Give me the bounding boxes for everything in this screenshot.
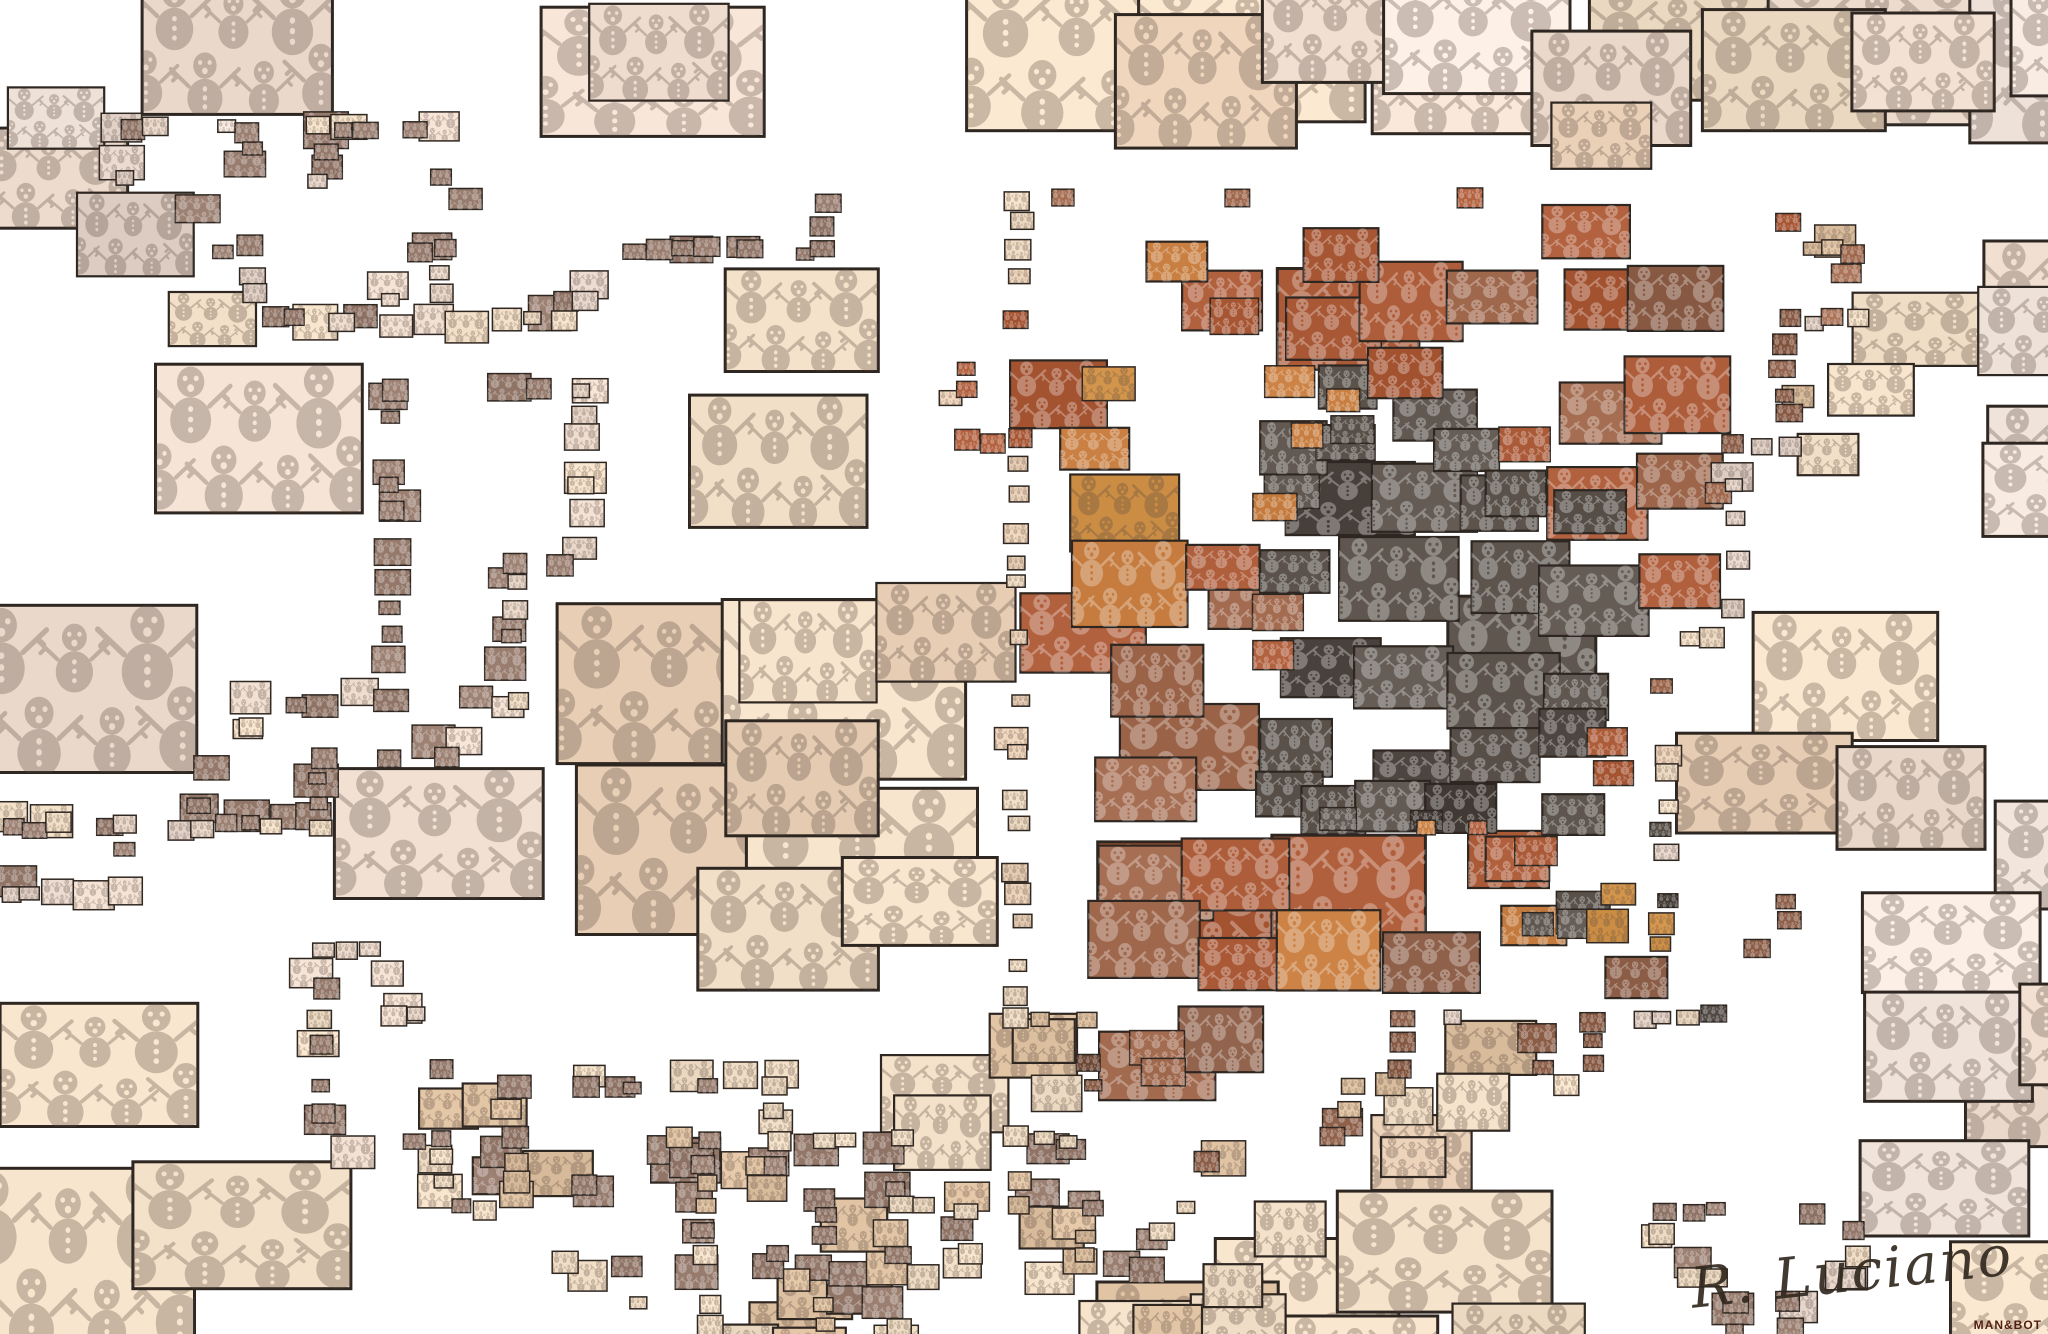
- mosaic-tile: [1776, 437, 1804, 456]
- mosaic-tile: [429, 1131, 453, 1147]
- mosaic-tile: [1796, 1204, 1828, 1224]
- mosaic-tile: [1317, 1127, 1348, 1146]
- mosaic-tile: [1959, 443, 2048, 539]
- mosaic-tile: [1576, 1013, 1608, 1033]
- mosaic-tile: [427, 284, 456, 303]
- mosaic-tile: [1698, 1269, 1730, 1287]
- mosaic-tile: [565, 499, 609, 527]
- mosaic-tile: [1123, 1305, 1211, 1334]
- mosaic-tile: [1837, 1268, 1868, 1289]
- mosaic-tile: [236, 718, 266, 737]
- mosaic-tile: [1074, 1012, 1099, 1028]
- mosaic-tile: [307, 1035, 336, 1054]
- mosaic-tile: [1491, 427, 1557, 463]
- mosaic-tile: [1175, 1201, 1197, 1213]
- mosaic-tile: [568, 1175, 599, 1195]
- mosaic-tile: [1369, 932, 1493, 994]
- mosaic-tile: [765, 1132, 794, 1152]
- mosaic-tile: [1772, 404, 1805, 422]
- mosaic-tile: [1655, 894, 1680, 908]
- mosaic-tile: [1005, 269, 1032, 284]
- mosaic-tile: [42, 812, 74, 833]
- mosaic-tile: [139, 117, 172, 136]
- mosaic-tile: [1550, 1075, 1582, 1096]
- mosaic-tile: [1596, 957, 1675, 999]
- mosaic-tile: [1001, 883, 1034, 905]
- mosaic-tile: [349, 122, 381, 139]
- mosaic-tile: [693, 1199, 718, 1214]
- mosaic-tile: [1006, 486, 1031, 502]
- mosaic-tile: [309, 1104, 338, 1123]
- mosaic-tile: [370, 570, 415, 596]
- mosaic-tile: [1080, 1200, 1106, 1216]
- mosaic-tile: [1245, 594, 1310, 631]
- mosaic-tile: [114, 0, 357, 118]
- mosaic-tile: [283, 698, 309, 714]
- mosaic-tile: [1596, 883, 1640, 905]
- mosaic-tile: [1454, 188, 1486, 208]
- mosaic-tile: [428, 169, 454, 185]
- mosaic-tile: [1581, 1055, 1606, 1071]
- mosaic-tile: [856, 1287, 908, 1319]
- mosaic-tile: [569, 291, 602, 310]
- mosaic-tile: [1244, 1201, 1334, 1257]
- mosaic-tile: [239, 816, 261, 830]
- mosaic-tile: [310, 943, 338, 957]
- mosaic-tile: [500, 553, 530, 573]
- mosaic-tile: [690, 1246, 721, 1265]
- mosaic-tile: [1001, 240, 1034, 261]
- mosaic-tile: [455, 686, 497, 708]
- mosaic-tile: [1000, 987, 1030, 1006]
- mosaic-tile: [379, 294, 401, 307]
- mosaic-tile: [1007, 212, 1037, 229]
- mosaic-tile: [937, 1217, 977, 1241]
- mosaic-tile: [1581, 909, 1634, 943]
- mosaic-tile: [1195, 1264, 1270, 1308]
- mosaic-tile: [620, 244, 649, 259]
- mosaic-tile: [523, 379, 554, 400]
- mosaic-tile: [1028, 1012, 1051, 1026]
- mosaic-tile: [1000, 524, 1032, 544]
- mosaic-tile: [1073, 1054, 1103, 1071]
- mosaic-tile: [1533, 794, 1612, 836]
- mosaic-tile: [1385, 1060, 1414, 1078]
- mosaic-tile: [643, 239, 676, 260]
- mosaic-tile: [257, 819, 284, 834]
- mosaic-tile: [304, 1010, 335, 1029]
- mosaic-tile: [1005, 745, 1029, 760]
- mosaic-tile: [742, 1176, 792, 1202]
- mosaic-tile: [1530, 205, 1642, 260]
- mosaic-tile: [1772, 1292, 1802, 1312]
- mosaic-tile: [1696, 628, 1727, 649]
- mosaic-tile: [1433, 1304, 1602, 1334]
- mosaic-tile: [910, 1198, 937, 1214]
- mosaic-tile: [427, 266, 452, 280]
- mosaic-tile: [303, 116, 333, 134]
- mosaic-tile: [282, 309, 307, 326]
- mosaic-tile: [377, 477, 401, 492]
- mosaic-tile: [1024, 1075, 1088, 1112]
- mosaic-tile: [999, 1008, 1031, 1029]
- artwork-canvas: R. Luciano MAN&BOT: [0, 0, 2048, 1334]
- mosaic-tile: [1049, 189, 1077, 206]
- mosaic-tile: [189, 756, 234, 781]
- mosaic-tile: [500, 1171, 533, 1193]
- mosaic-tile: [1257, 366, 1321, 398]
- mosaic-tile: [1647, 937, 1673, 951]
- mosaic-tile: [306, 773, 328, 784]
- mosaic-tile: [889, 1130, 917, 1146]
- mosaic-tile: [1222, 189, 1253, 207]
- mosaic-tile: [1838, 245, 1868, 264]
- mosaic-tile: [1581, 1034, 1604, 1048]
- mosaic-tile: [1723, 551, 1752, 569]
- mosaic-tile: [310, 978, 343, 999]
- mosaic-tile: [400, 122, 430, 138]
- mosaic-tile: [1815, 747, 2004, 853]
- mosaic-tile: [487, 1099, 525, 1119]
- mosaic-tile: [764, 1246, 791, 1262]
- mosaic-tile: [1816, 364, 1926, 417]
- mosaic-tile: [1840, 1222, 1867, 1240]
- mosaic-tile: [308, 797, 330, 810]
- mosaic-tile: [1050, 428, 1138, 471]
- mosaic-tile: [187, 821, 216, 838]
- mosaic-tile: [1530, 1061, 1556, 1075]
- mosaic-tile: [807, 241, 838, 257]
- mosaic-tile: [377, 1006, 410, 1026]
- mosaic-tile: [367, 646, 409, 673]
- mosaic-tile: [444, 188, 486, 209]
- mosaic-tile: [881, 1247, 914, 1264]
- mosaic-tile: [1609, 356, 1744, 435]
- mosaic-tile: [955, 362, 977, 375]
- mosaic-tile: [663, 1127, 696, 1148]
- mosaic-tile: [1005, 456, 1030, 471]
- mosaic-tile: [1004, 575, 1028, 588]
- mosaic-tile: [1000, 311, 1031, 329]
- mosaic-tile: [1315, 808, 1362, 831]
- mosaic-tile: [1006, 1197, 1032, 1215]
- mosaic-tile: [1250, 550, 1339, 594]
- mosaic-tile: [499, 601, 531, 620]
- snowman-mosaic: [0, 0, 2048, 1334]
- mosaic-tile: [1306, 1191, 1580, 1315]
- mosaic-tile: [688, 1156, 718, 1175]
- mosaic-tile: [1509, 837, 1563, 867]
- mosaic-tile: [306, 820, 335, 836]
- mosaic-tile: [1073, 1248, 1097, 1262]
- mosaic-tile: [521, 312, 543, 325]
- mosaic-tile: [427, 1060, 456, 1079]
- mosaic-tile: [1840, 992, 2048, 1104]
- mosaic-tile: [814, 1318, 838, 1331]
- mosaic-tile: [1425, 429, 1508, 472]
- mosaic-tile: [104, 877, 147, 905]
- mosaic-tile: [400, 1134, 428, 1149]
- mosaic-tile: [380, 626, 405, 642]
- mosaic-tile: [479, 647, 531, 681]
- mosaic-tile: [1477, 471, 1554, 518]
- mosaic-tile: [305, 174, 329, 188]
- mosaic-tile: [832, 1133, 858, 1147]
- mosaic-tile: [1650, 1012, 1673, 1024]
- mosaic-tile: [236, 268, 269, 285]
- mosaic-tile: [1293, 228, 1389, 283]
- mosaic-tile: [1005, 556, 1027, 570]
- mosaic-tile: [240, 284, 270, 303]
- mosaic-tile: [664, 395, 891, 531]
- mosaic-tile: [733, 240, 766, 258]
- mosaic-tile: [379, 411, 402, 423]
- mosaic-tile: [1008, 630, 1029, 645]
- mosaic-tile: [1765, 360, 1798, 377]
- mosaic-tile: [807, 217, 837, 236]
- mosaic-tile: [1322, 537, 1475, 623]
- mosaic-tile: [669, 241, 697, 256]
- mosaic-tile: [1648, 679, 1675, 693]
- mosaic-tile: [998, 863, 1031, 882]
- mosaic-tile: [1005, 816, 1032, 831]
- mosaic-tile: [1650, 1203, 1679, 1220]
- mosaic-tile: [1262, 910, 1394, 993]
- mosaic-tile: [404, 243, 435, 262]
- mosaic-tile: [1247, 641, 1299, 671]
- mosaic-tile: [1581, 728, 1632, 757]
- mosaic-tile: [1652, 764, 1680, 781]
- mosaic-tile: [333, 942, 360, 960]
- mosaic-tile: [498, 1127, 531, 1149]
- mosaic-tile: [813, 1208, 839, 1223]
- mosaic-tile: [1001, 192, 1033, 211]
- mosaic-tile: [564, 477, 597, 494]
- mosaic-tile: [1335, 1102, 1364, 1118]
- mosaic-tile: [1427, 1074, 1519, 1133]
- mosaic-tile: [1673, 1010, 1702, 1025]
- mosaic-tile: [1719, 599, 1747, 618]
- mosaic-tile: [627, 1297, 649, 1309]
- mosaic-tile: [1073, 1230, 1098, 1243]
- mosaic-tile: [1011, 914, 1035, 928]
- mosaic-tile: [883, 1182, 907, 1196]
- mosaic-tile: [1057, 1136, 1079, 1149]
- mosaic-tile: [548, 1251, 581, 1274]
- mosaic-tile: [111, 843, 138, 857]
- mosaic-tile: [1075, 367, 1142, 402]
- mosaic-tile: [1842, 1246, 1873, 1267]
- mosaic-tile: [356, 942, 383, 956]
- mosaic-tile: [1518, 913, 1557, 937]
- mosaic-tile: [884, 1319, 915, 1334]
- mosaic-tile: [1773, 895, 1797, 909]
- mosaic-tile: [1657, 800, 1681, 814]
- mosaic-tile: [210, 245, 236, 259]
- mosaic-tile: [762, 1328, 855, 1334]
- mosaic-tile: [1749, 439, 1775, 455]
- mosaic-tile: [1338, 1078, 1368, 1094]
- mosaic-tile: [1191, 1151, 1223, 1172]
- mosaic-tile: [809, 1227, 840, 1245]
- mosaic-tile: [405, 1007, 427, 1021]
- mosaic-tile: [304, 769, 571, 903]
- mosaic-tile: [374, 750, 403, 768]
- mosaic-tile: [812, 194, 845, 212]
- mosaic-tile: [695, 1079, 720, 1093]
- mosaic-tile: [1680, 1205, 1707, 1222]
- mosaic-tile: [1827, 264, 1865, 283]
- mosaic-tile: [761, 1103, 786, 1119]
- mosaic-tile: [1704, 1203, 1728, 1216]
- mosaic-tile: [376, 601, 403, 615]
- mosaic-tile: [499, 629, 524, 642]
- mosaic-tile: [548, 311, 580, 331]
- mosaic-tile: [1537, 103, 1665, 171]
- mosaic-tile: [1007, 960, 1029, 972]
- mosaic-tile: [1287, 423, 1327, 449]
- mosaic-tile: [1628, 554, 1731, 609]
- mosaic-tile: [1922, 1242, 2048, 1334]
- mosaic-tile: [758, 1077, 790, 1095]
- mosaic-tile: [1005, 1172, 1034, 1191]
- mosaic-tile: [1845, 309, 1872, 327]
- mosaic-tile: [1719, 1292, 1751, 1313]
- mosaic-tile: [1372, 1137, 1454, 1178]
- mosaic-tile: [1645, 1224, 1677, 1245]
- mosaic-tile: [1055, 541, 1203, 630]
- mosaic-tile: [1322, 389, 1364, 412]
- mosaic-tile: [1835, 1141, 2048, 1239]
- mosaic-tile: [1512, 1024, 1561, 1054]
- mosaic-tile: [856, 583, 1034, 684]
- mosaic-tile: [1777, 310, 1803, 327]
- mosaic-tile: [369, 689, 413, 712]
- mosaic-tile: [1774, 912, 1804, 929]
- mosaic-tile: [1614, 266, 1736, 333]
- mosaic-tile: [1146, 1223, 1178, 1241]
- mosaic-tile: [376, 501, 407, 520]
- mosaic-tile: [431, 1175, 455, 1188]
- mosaic-tile: [1031, 1131, 1057, 1144]
- mosaic-tile: [1387, 1032, 1419, 1052]
- mosaic-tile: [568, 406, 600, 424]
- mosaic-tile: [493, 1075, 536, 1098]
- mosaic-tile: [954, 381, 980, 397]
- mosaic-tile: [367, 961, 408, 987]
- mosaic-tile: [569, 1076, 602, 1097]
- mosaic-tile: [1203, 298, 1265, 335]
- mosaic-tile: [502, 1153, 532, 1173]
- mosaic-tile: [1818, 309, 1845, 326]
- mosaic-tile: [114, 171, 136, 186]
- mosaic-tile: [0, 1003, 224, 1130]
- mosaic-tile: [607, 1256, 646, 1277]
- mosaic-tile: [1009, 695, 1031, 707]
- mosaic-tile: [125, 364, 389, 517]
- mosaic-tile: [570, 384, 592, 398]
- mosaic-tile: [240, 142, 265, 155]
- mosaic-tile: [308, 748, 340, 769]
- mosaic-tile: [696, 1132, 723, 1149]
- mosaic-tile: [1414, 820, 1437, 835]
- mosaic-tile: [697, 1295, 724, 1313]
- mosaic-tile: [1697, 1005, 1730, 1022]
- mosaic-tile: [37, 879, 78, 905]
- mosaic-tile: [719, 600, 894, 705]
- mosaic-tile: [1647, 822, 1674, 836]
- mosaic-tile: [951, 1204, 981, 1220]
- mosaic-tile: [431, 747, 462, 767]
- mosaic-tile: [213, 814, 240, 831]
- mosaic-tile: [1774, 1318, 1807, 1334]
- mosaic-tile: [488, 308, 525, 331]
- mosaic-tile: [1246, 493, 1302, 521]
- mosaic-tile: [470, 1201, 499, 1220]
- mosaic-tile: [694, 1315, 727, 1334]
- mosaic-tile: [780, 1269, 813, 1292]
- mosaic-tile: [0, 87, 117, 150]
- mosaic-tile: [449, 1199, 473, 1213]
- mosaic-tile: [432, 240, 459, 257]
- mosaic-tile: [427, 1149, 456, 1165]
- mosaic-tile: [375, 315, 417, 338]
- mosaic-tile: [688, 1223, 717, 1239]
- mosaic-tile: [0, 605, 228, 777]
- mosaic-tile: [951, 429, 983, 450]
- mosaic-tile: [1442, 1010, 1464, 1024]
- mosaic-tile: [325, 313, 358, 332]
- mosaic-tile: [820, 857, 1018, 947]
- mosaic-tile: [1080, 757, 1209, 823]
- mosaic-tile: [1098, 645, 1216, 719]
- mosaic-tile: [369, 539, 415, 566]
- mosaic-tile: [1726, 612, 1962, 744]
- mosaic-tile: [232, 123, 262, 143]
- mosaic-tile: [1124, 1257, 1168, 1283]
- mosaic-tile: [1645, 913, 1677, 935]
- mosaic-tile: [903, 1265, 943, 1290]
- mosaic-tile: [310, 1080, 332, 1092]
- mosaic-tile: [1072, 901, 1214, 980]
- mosaic-tile: [543, 555, 576, 577]
- mosaic-tile: [761, 1157, 789, 1176]
- mosaic-tile: [1723, 479, 1745, 492]
- mosaic-tile: [506, 693, 531, 710]
- mosaic-tile: [1836, 893, 2048, 996]
- mosaic-tile: [1651, 844, 1682, 860]
- mosaic-tile: [1006, 429, 1035, 448]
- mosaic-tile: [811, 1298, 836, 1312]
- mosaic-tile: [16, 887, 42, 900]
- mosaic-tile: [1175, 545, 1269, 591]
- mosaic-tile: [1000, 1126, 1032, 1147]
- mosaic-tile: [1719, 435, 1746, 454]
- mosaic-tile: [1740, 939, 1773, 957]
- mosaic-tile: [101, 1162, 380, 1292]
- mosaic-tile: [977, 434, 1008, 454]
- mosaic-tile: [569, 4, 747, 104]
- mosaic-tile: [1082, 1080, 1104, 1091]
- mosaic-tile: [439, 311, 494, 343]
- mosaic-tile: [1544, 490, 1636, 534]
- mosaic-tile: [955, 1244, 985, 1265]
- mosaic-tile: [1724, 1324, 1746, 1334]
- mosaic-tile: [1588, 761, 1639, 786]
- mosaic-tile: [703, 269, 899, 375]
- mosaic-tile: [1831, 13, 2013, 114]
- mosaic-tile: [1772, 213, 1804, 231]
